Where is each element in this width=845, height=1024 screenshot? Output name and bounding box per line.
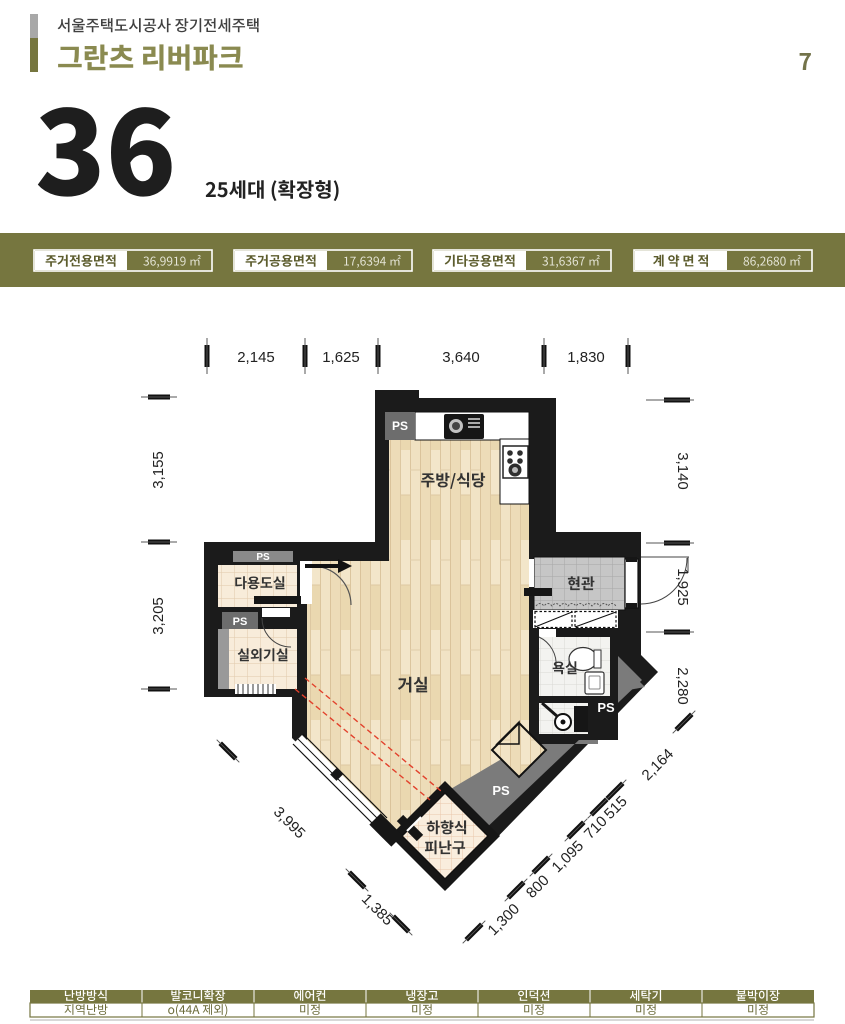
svg-text:1,925: 1,925 [674,568,691,606]
svg-text:1,095: 1,095 [549,838,588,877]
svg-text:2,145: 2,145 [237,349,275,366]
svg-text:800: 800 [523,872,553,902]
svg-text:1,625: 1,625 [322,349,360,366]
svg-text:1,830: 1,830 [567,349,605,366]
svg-text:PS: PS [233,616,248,628]
svg-text:PS: PS [492,783,510,798]
svg-text:3,155: 3,155 [150,451,167,489]
svg-text:PS: PS [597,700,615,715]
svg-text:3,205: 3,205 [150,597,167,635]
svg-text:1,385: 1,385 [358,891,397,930]
svg-text:PS: PS [392,419,408,433]
svg-text:3,995: 3,995 [270,804,309,843]
svg-text:3,640: 3,640 [442,349,480,366]
svg-text:2,280: 2,280 [674,667,691,705]
svg-text:1,300: 1,300 [485,901,524,940]
svg-text:2,164: 2,164 [639,746,678,785]
svg-text:3,140: 3,140 [674,452,691,490]
svg-text:PS: PS [256,552,270,563]
svg-text:515: 515 [601,793,631,823]
svg-text:710: 710 [581,813,611,843]
